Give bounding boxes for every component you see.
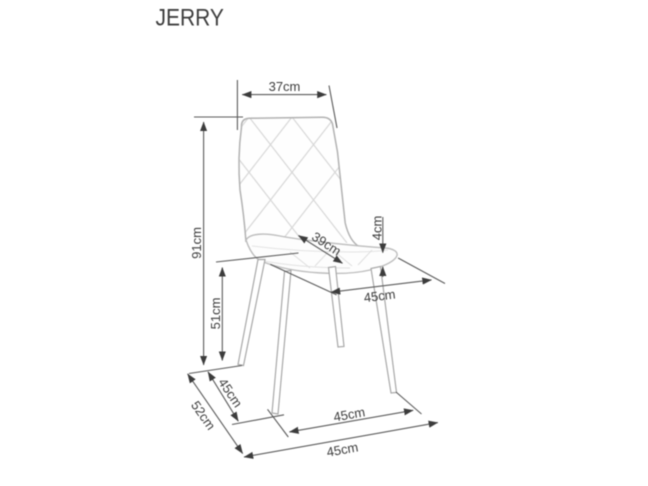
svg-text:JERRY: JERRY — [156, 4, 224, 31]
svg-text:91cm: 91cm — [189, 227, 204, 259]
svg-text:4cm: 4cm — [369, 216, 384, 241]
svg-text:51cm: 51cm — [208, 298, 223, 330]
svg-text:37cm: 37cm — [269, 79, 301, 94]
